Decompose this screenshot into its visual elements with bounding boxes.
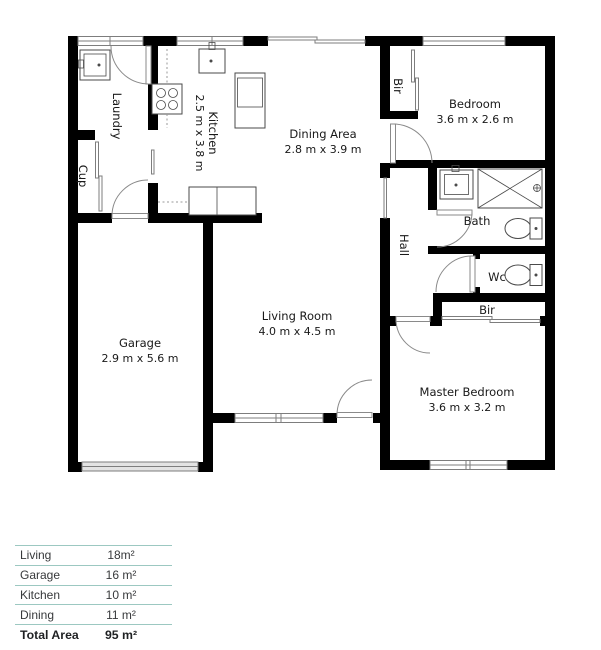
kitchen-sink-icon [199,43,225,74]
bedroom-dims: 3.6 m x 2.6 m [437,113,514,126]
kitchen-window [177,37,243,46]
hall-label: Hall [397,234,411,256]
row-value: 18m² [95,548,147,562]
master-bedroom-label: Master Bedroom [420,385,515,399]
table-row: Dining 11 m² [15,604,172,624]
dining-label: Dining Area [289,127,356,141]
row-label: Garage [15,568,95,582]
floor-plan-svg: Laundry Cup Kitchen 2.5 m x 3.8 m Dining… [0,0,601,540]
garage-label: Garage [119,336,161,350]
row-label: Dining [15,608,95,622]
wc-label: Wc [488,270,506,284]
kitchen-opening-jamb [152,150,155,174]
row-value: 16 m² [95,568,147,582]
dining-high-window [268,37,365,43]
total-label: Total Area [15,628,95,642]
kitchen-counter-icon [235,73,265,128]
cup-sliding-door [96,142,103,211]
row-value: 11 m² [95,608,147,622]
master-bedroom-window [430,461,507,470]
kitchen-dims: 2.5 m x 3.8 m [193,95,206,172]
table-row-total: Total Area 95 m² [15,624,172,644]
wc-door [436,256,475,292]
laundry-label: Laundry [110,93,124,140]
laundry-entry-door [111,46,151,84]
bath-sink-icon [440,166,473,200]
living-room-dims: 4.0 m x 4.5 m [259,325,336,338]
bedroom-door [391,124,433,163]
living-room-label: Living Room [262,309,333,323]
total-value: 95 m² [95,628,147,642]
garage-door [82,462,198,471]
table-row: Kitchen 10 m² [15,585,172,605]
stove-icon [152,84,182,114]
master-bedroom-door [396,317,430,354]
laundry-south-door [112,180,148,219]
bedroom-label: Bedroom [449,97,501,111]
bedroom-window [423,37,505,46]
living-window [235,414,323,423]
table-row: Garage 16 m² [15,565,172,585]
bath-label: Bath [464,214,491,228]
row-label: Kitchen [15,588,95,602]
area-table: Living 18m² Garage 16 m² Kitchen 10 m² D… [15,545,172,644]
laundry-sink-icon [79,50,111,80]
bir-top-label: Bir [391,78,405,94]
bath-toilet-icon [505,218,542,239]
floor-plan: Laundry Cup Kitchen 2.5 m x 3.8 m Dining… [0,0,601,540]
bir-lower-label: Bir [479,303,495,317]
row-value: 10 m² [95,588,147,602]
wc-toilet-icon [505,265,542,286]
shower-icon [478,169,542,208]
row-label: Living [15,548,95,562]
front-door [337,380,372,418]
cup-label: Cup [76,165,90,188]
kitchen-label: Kitchen [206,111,220,154]
bir-top-sliding-door [412,50,419,110]
table-row: Living 18m² [15,545,172,565]
dining-dims: 2.8 m x 3.9 m [285,143,362,156]
laundry-window [78,37,143,46]
bir-lower-sliding-door [442,317,540,323]
hall-opening-jamb [384,178,387,218]
garage-dims: 2.9 m x 5.6 m [102,352,179,365]
kitchen-island-icon [189,187,256,215]
master-bedroom-dims: 3.6 m x 3.2 m [429,401,506,414]
